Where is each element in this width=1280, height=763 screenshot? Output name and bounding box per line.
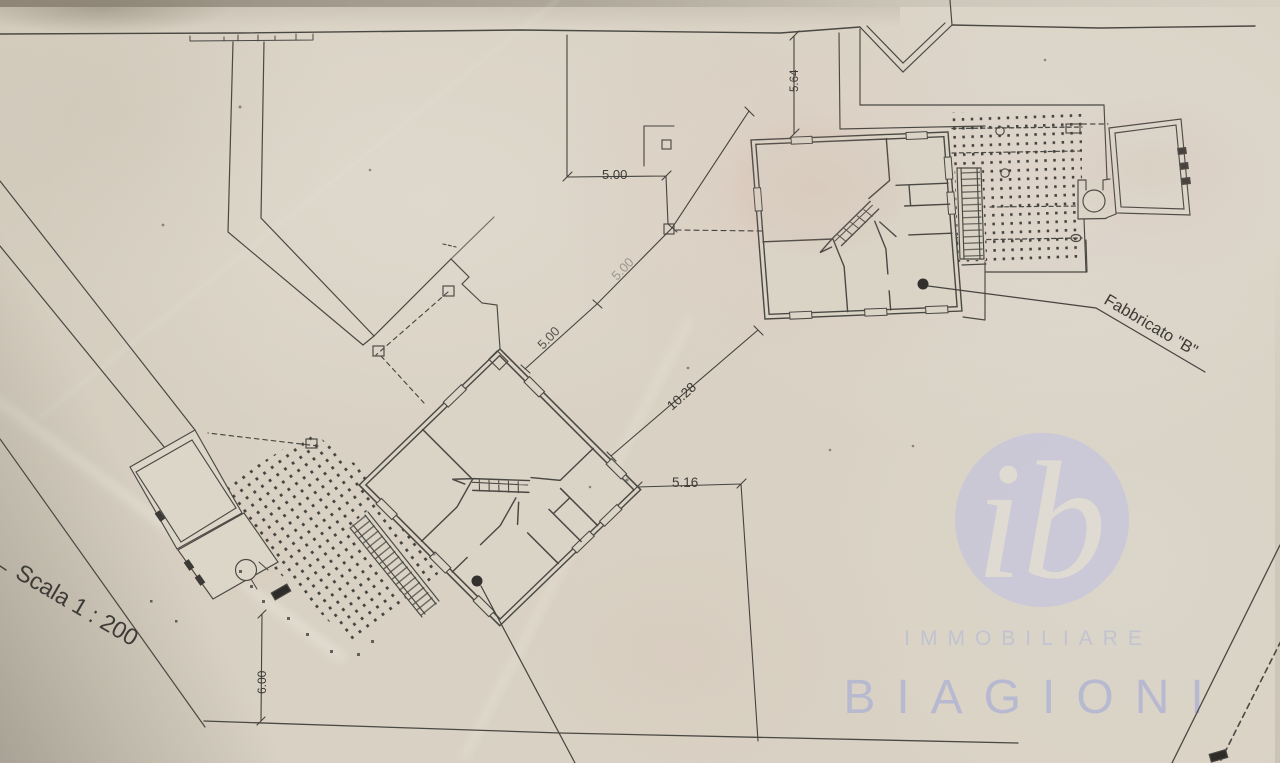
svg-text:5.00: 5.00: [534, 323, 562, 352]
svg-text:5.64: 5.64: [789, 69, 801, 92]
svg-text:5.00: 5.00: [608, 254, 636, 283]
svg-text:6.00: 6.00: [255, 670, 269, 694]
svg-text:Scala 1 : 200: Scala 1 : 200: [11, 559, 142, 651]
svg-text:Fabbricato "B": Fabbricato "B": [1101, 291, 1201, 360]
svg-text:5.00: 5.00: [602, 167, 627, 182]
svg-text:5.16: 5.16: [672, 475, 698, 490]
